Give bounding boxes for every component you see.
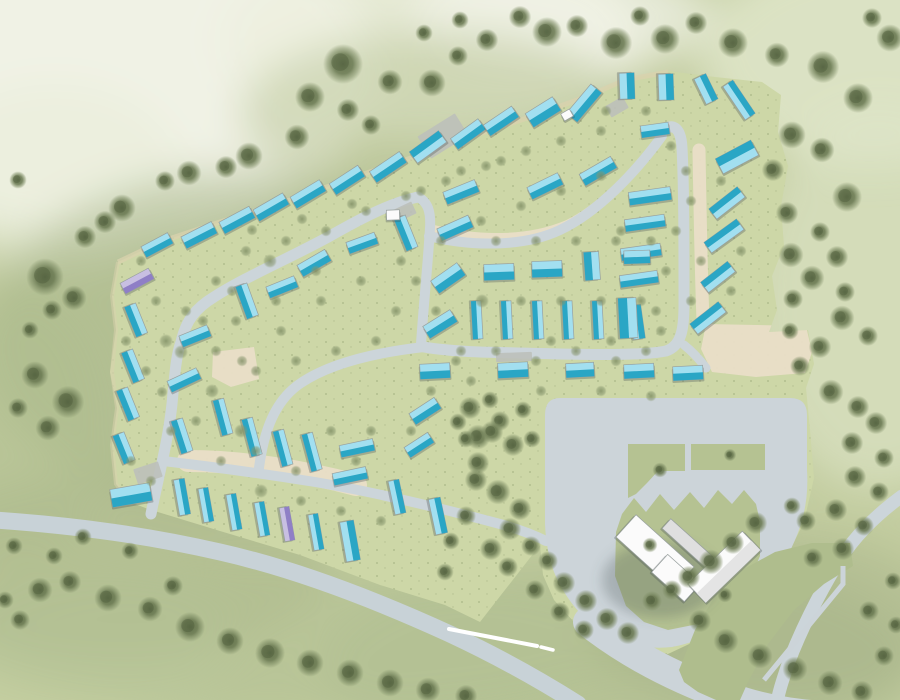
tree-icon	[514, 401, 532, 419]
shrub-icon	[290, 465, 301, 476]
shrub-icon	[645, 390, 656, 401]
tree-icon	[378, 70, 403, 95]
tree-icon	[574, 620, 594, 640]
tree-icon	[642, 591, 662, 611]
shrub-icon	[405, 425, 416, 436]
tree-icon	[523, 430, 541, 448]
tree-icon	[285, 125, 310, 150]
tree-icon	[163, 576, 183, 596]
tree-icon	[9, 171, 27, 189]
tree-icon	[480, 538, 503, 561]
tree-icon	[600, 27, 633, 60]
tree-icon	[457, 430, 475, 448]
tree-icon	[361, 115, 381, 135]
shrub-icon	[296, 213, 307, 224]
shrub-icon	[535, 385, 546, 396]
tree-icon	[643, 538, 658, 553]
tree-icon	[94, 211, 117, 234]
shrub-icon	[450, 355, 461, 366]
shrub-icon	[515, 200, 526, 211]
shrub-icon	[645, 235, 656, 246]
shrub-icon	[365, 425, 376, 436]
shrub-icon	[570, 235, 581, 246]
tree-icon	[337, 99, 360, 122]
building	[581, 251, 600, 282]
shrub-icon	[520, 145, 531, 156]
shrub-icon	[455, 165, 466, 176]
shrub-icon	[555, 135, 566, 146]
tree-icon	[177, 161, 202, 186]
tree-icon	[718, 588, 733, 603]
shrub-icon	[695, 255, 706, 266]
shrub-icon	[490, 235, 501, 246]
tree-icon	[832, 182, 862, 212]
tree-icon	[748, 644, 773, 669]
shrub-icon	[210, 345, 221, 356]
shrub-icon	[685, 295, 696, 306]
shrub-icon	[465, 375, 476, 386]
shrub-icon	[240, 245, 251, 256]
building	[419, 363, 452, 382]
shrub-icon	[335, 505, 346, 516]
shrub-icon	[715, 175, 726, 186]
shrub-icon	[410, 275, 421, 286]
tree-icon	[52, 386, 85, 419]
tree-icon	[59, 571, 82, 594]
shrub-icon	[530, 235, 541, 246]
tree-icon	[699, 550, 724, 575]
tree-icon	[779, 243, 804, 268]
shrub-icon	[490, 345, 501, 356]
shrub-icon	[325, 425, 336, 436]
tree-icon	[662, 580, 682, 600]
shrub-icon	[360, 205, 371, 216]
tree-icon	[765, 43, 790, 68]
building	[616, 297, 638, 340]
shrub-icon	[455, 345, 466, 356]
shrub-icon	[725, 285, 736, 296]
tree-icon	[467, 452, 490, 475]
shrub-icon	[595, 295, 606, 306]
tree-icon	[418, 69, 446, 97]
shrub-icon	[270, 295, 281, 306]
shrub-icon	[135, 255, 146, 266]
tree-icon	[783, 289, 803, 309]
shrub-icon	[310, 265, 321, 276]
shrub-icon	[530, 355, 541, 366]
tree-icon	[874, 448, 894, 468]
tree-icon	[8, 398, 28, 418]
tree-icon	[685, 12, 708, 35]
tree-icon	[42, 300, 62, 320]
building	[623, 250, 652, 266]
tree-icon	[36, 416, 61, 441]
tree-icon	[502, 434, 525, 457]
tree-icon	[807, 51, 840, 84]
tree-icon	[826, 246, 849, 269]
shrub-icon	[610, 355, 621, 366]
tree-icon	[724, 449, 737, 462]
tree-icon	[235, 142, 263, 170]
tree-icon	[498, 557, 518, 577]
tree-icon	[781, 322, 799, 340]
tree-icon	[481, 421, 504, 444]
tree-icon	[678, 566, 701, 589]
tree-icon	[45, 547, 63, 565]
tree-icon	[323, 44, 363, 84]
shrub-icon	[355, 275, 366, 286]
shrub-icon	[375, 515, 386, 526]
tree-icon	[783, 497, 801, 515]
tree-icon	[481, 391, 499, 409]
tree-icon	[155, 171, 175, 191]
shrub-icon	[595, 125, 606, 136]
building	[617, 72, 635, 101]
shrub-icon	[650, 305, 661, 316]
tree-icon	[499, 518, 522, 541]
tree-icon	[835, 282, 855, 302]
shrub-icon	[660, 265, 671, 276]
tree-icon	[796, 511, 816, 531]
tree-icon	[790, 356, 810, 376]
shrub-icon	[515, 295, 526, 306]
tree-icon	[832, 538, 855, 561]
shrub-icon	[370, 335, 381, 346]
tree-icon	[844, 466, 867, 489]
tree-icon	[722, 532, 745, 555]
shrub-icon	[595, 170, 606, 181]
tree-icon	[783, 657, 808, 682]
tree-icon	[215, 156, 238, 179]
shrub-icon	[263, 254, 277, 268]
shrub-icon	[495, 155, 506, 166]
shrub-icon	[205, 384, 219, 398]
shrub-icon	[226, 285, 237, 296]
shrub-icon	[120, 335, 131, 346]
shrub-icon	[280, 235, 291, 246]
shrub-icon	[140, 365, 151, 376]
shrub-icon	[610, 235, 621, 246]
building	[499, 300, 513, 341]
tree-icon	[553, 572, 576, 595]
shrub-icon	[425, 385, 436, 396]
building	[623, 363, 656, 381]
tree-icon	[486, 480, 511, 505]
tree-icon	[21, 361, 49, 389]
tree-icon	[762, 159, 785, 182]
tree-icon	[21, 321, 39, 339]
shrub-icon	[295, 495, 306, 506]
shrub-icon	[735, 245, 746, 256]
shrub-icon	[246, 224, 257, 235]
tree-icon	[415, 24, 433, 42]
shrub-icon	[595, 385, 606, 396]
shrub-icon	[165, 425, 176, 436]
tree-icon	[800, 266, 825, 291]
tree-icon	[94, 584, 122, 612]
tree-icon	[810, 222, 830, 242]
tree-icon	[617, 622, 640, 645]
building	[565, 362, 596, 380]
tree-icon	[745, 512, 768, 535]
shrub-icon	[350, 455, 361, 466]
shrub-icon	[415, 185, 426, 196]
tree-icon	[336, 659, 364, 687]
sand-path	[699, 150, 703, 320]
shrub-icon	[555, 185, 566, 196]
shrub-icon	[275, 325, 286, 336]
shrub-icon	[555, 295, 566, 306]
parking-pad	[496, 352, 532, 362]
tree-icon	[689, 610, 712, 633]
building	[483, 263, 516, 282]
tree-icon	[858, 326, 878, 346]
tree-icon	[714, 629, 739, 654]
tree-icon	[550, 602, 570, 622]
shrub-icon	[254, 484, 268, 498]
tree-icon	[776, 202, 799, 225]
shrub-icon	[197, 315, 208, 326]
shrub-icon	[545, 335, 556, 346]
tree-icon	[521, 536, 541, 556]
shrub-icon	[390, 305, 401, 316]
shrub-icon	[180, 305, 191, 316]
tree-icon	[653, 463, 668, 478]
tree-icon	[575, 590, 598, 613]
tree-icon	[74, 226, 97, 249]
building	[656, 73, 674, 102]
tree-icon	[532, 17, 562, 47]
tree-icon	[448, 46, 468, 66]
tree-icon	[26, 258, 64, 296]
tree-icon	[818, 671, 843, 696]
shrub-icon	[640, 105, 651, 116]
tree-icon	[28, 578, 53, 603]
tree-icon	[175, 612, 205, 642]
tree-icon	[121, 542, 139, 560]
shrub-icon	[236, 355, 247, 366]
shrub-icon	[400, 190, 411, 201]
building	[531, 260, 564, 279]
shrub-icon	[125, 455, 136, 466]
building	[530, 300, 544, 341]
shrub-icon	[640, 345, 651, 356]
shrub-icon	[475, 294, 489, 308]
shrub-icon	[685, 195, 696, 206]
tree-icon	[255, 638, 285, 668]
tree-icon	[442, 532, 460, 550]
shrub-icon	[190, 415, 201, 426]
shrub-icon	[230, 315, 241, 326]
tree-icon	[809, 336, 832, 359]
shrub-icon	[234, 424, 248, 438]
tree-icon	[819, 380, 844, 405]
shrub-icon	[395, 255, 406, 266]
tree-icon	[869, 482, 889, 502]
shrub-icon	[156, 386, 167, 397]
tree-icon	[74, 528, 92, 546]
shrub-icon	[320, 225, 331, 236]
tree-icon	[874, 646, 894, 666]
tree-icon	[138, 597, 163, 622]
tree-icon	[436, 563, 454, 581]
tree-icon	[596, 608, 619, 631]
tree-icon	[5, 537, 23, 555]
tree-icon	[830, 306, 855, 331]
tree-icon	[295, 82, 325, 112]
shrub-icon	[250, 445, 261, 456]
tree-icon	[825, 499, 848, 522]
shrub-icon	[210, 275, 221, 286]
tree-icon	[538, 551, 558, 571]
shrub-icon	[480, 160, 491, 171]
building-white	[385, 210, 400, 223]
shrub-icon	[430, 305, 441, 316]
shrub-icon	[655, 325, 666, 336]
shrub-icon	[346, 198, 357, 209]
shrub-icon	[330, 345, 341, 356]
tree-icon	[216, 627, 244, 655]
shrub-icon	[435, 235, 446, 246]
shrub-icon	[570, 345, 581, 356]
tree-icon	[509, 6, 532, 29]
shrub-icon	[615, 225, 626, 236]
tree-icon	[456, 506, 476, 526]
tree-icon	[451, 11, 469, 29]
tree-icon	[650, 24, 680, 54]
tree-icon	[509, 498, 532, 521]
tree-icon	[566, 15, 589, 38]
tree-icon	[865, 412, 888, 435]
tree-icon	[859, 601, 879, 621]
tree-icon	[843, 83, 873, 113]
tree-icon	[810, 138, 835, 163]
tree-icon	[10, 610, 30, 630]
tree-icon	[525, 580, 545, 600]
shrub-icon	[145, 475, 156, 486]
shrub-icon	[174, 345, 188, 359]
shrub-icon	[680, 165, 691, 176]
shrub-icon	[150, 295, 161, 306]
tree-icon	[476, 29, 499, 52]
tree-icon	[718, 28, 748, 58]
building	[497, 362, 530, 381]
shrub-icon	[315, 295, 326, 306]
tree-icon	[841, 432, 864, 455]
tree-icon	[62, 286, 87, 311]
tree-icon	[862, 8, 882, 28]
tree-icon	[803, 548, 823, 568]
shrub-icon	[665, 140, 676, 151]
shrub-icon	[475, 215, 486, 226]
tree-icon	[449, 413, 467, 431]
tree-icon	[778, 121, 806, 149]
shrub-icon	[670, 225, 681, 236]
site-plan-map	[0, 0, 900, 700]
shrub-icon	[605, 335, 616, 346]
tree-icon	[847, 396, 870, 419]
tree-icon	[630, 6, 650, 26]
tree-icon	[296, 649, 324, 677]
shrub-icon	[440, 175, 451, 186]
tree-icon	[376, 669, 404, 697]
shrub-icon	[635, 295, 646, 306]
shrub-icon	[215, 455, 226, 466]
shrub-icon	[290, 355, 301, 366]
building	[672, 365, 705, 383]
site-plan	[0, 0, 900, 700]
tree-icon	[854, 516, 874, 536]
shrub-icon	[250, 365, 261, 376]
shrub-icon	[600, 105, 611, 116]
shrub-icon	[159, 334, 173, 348]
